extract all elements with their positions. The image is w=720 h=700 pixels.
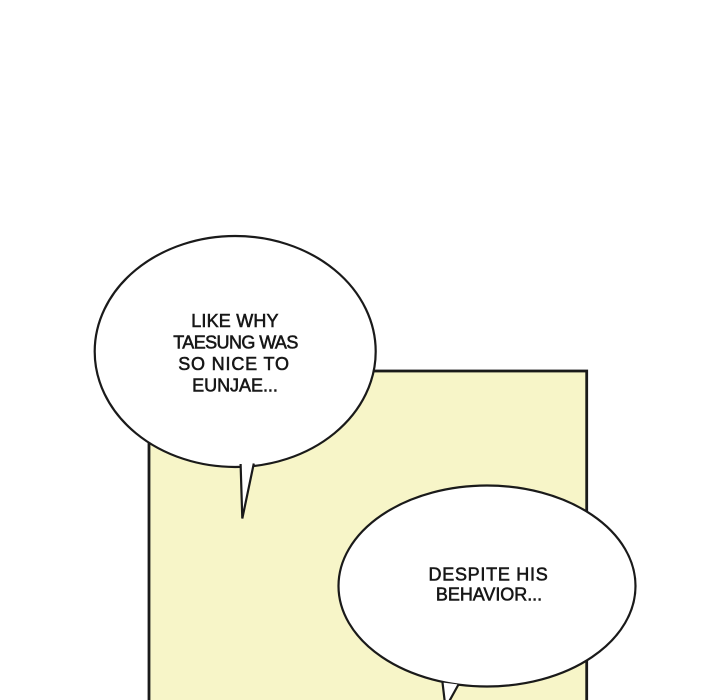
svg-text:EUNJAE...: EUNJAE... [192,376,278,396]
svg-text:TAESUNG WAS: TAESUNG WAS [173,332,298,352]
svg-text:LIKE WHY: LIKE WHY [191,311,279,331]
svg-text:SO NICE TO: SO NICE TO [178,354,290,374]
svg-text:DESPITE HIS: DESPITE HIS [429,564,549,584]
svg-text:BEHAVIOR...: BEHAVIOR... [436,584,542,604]
